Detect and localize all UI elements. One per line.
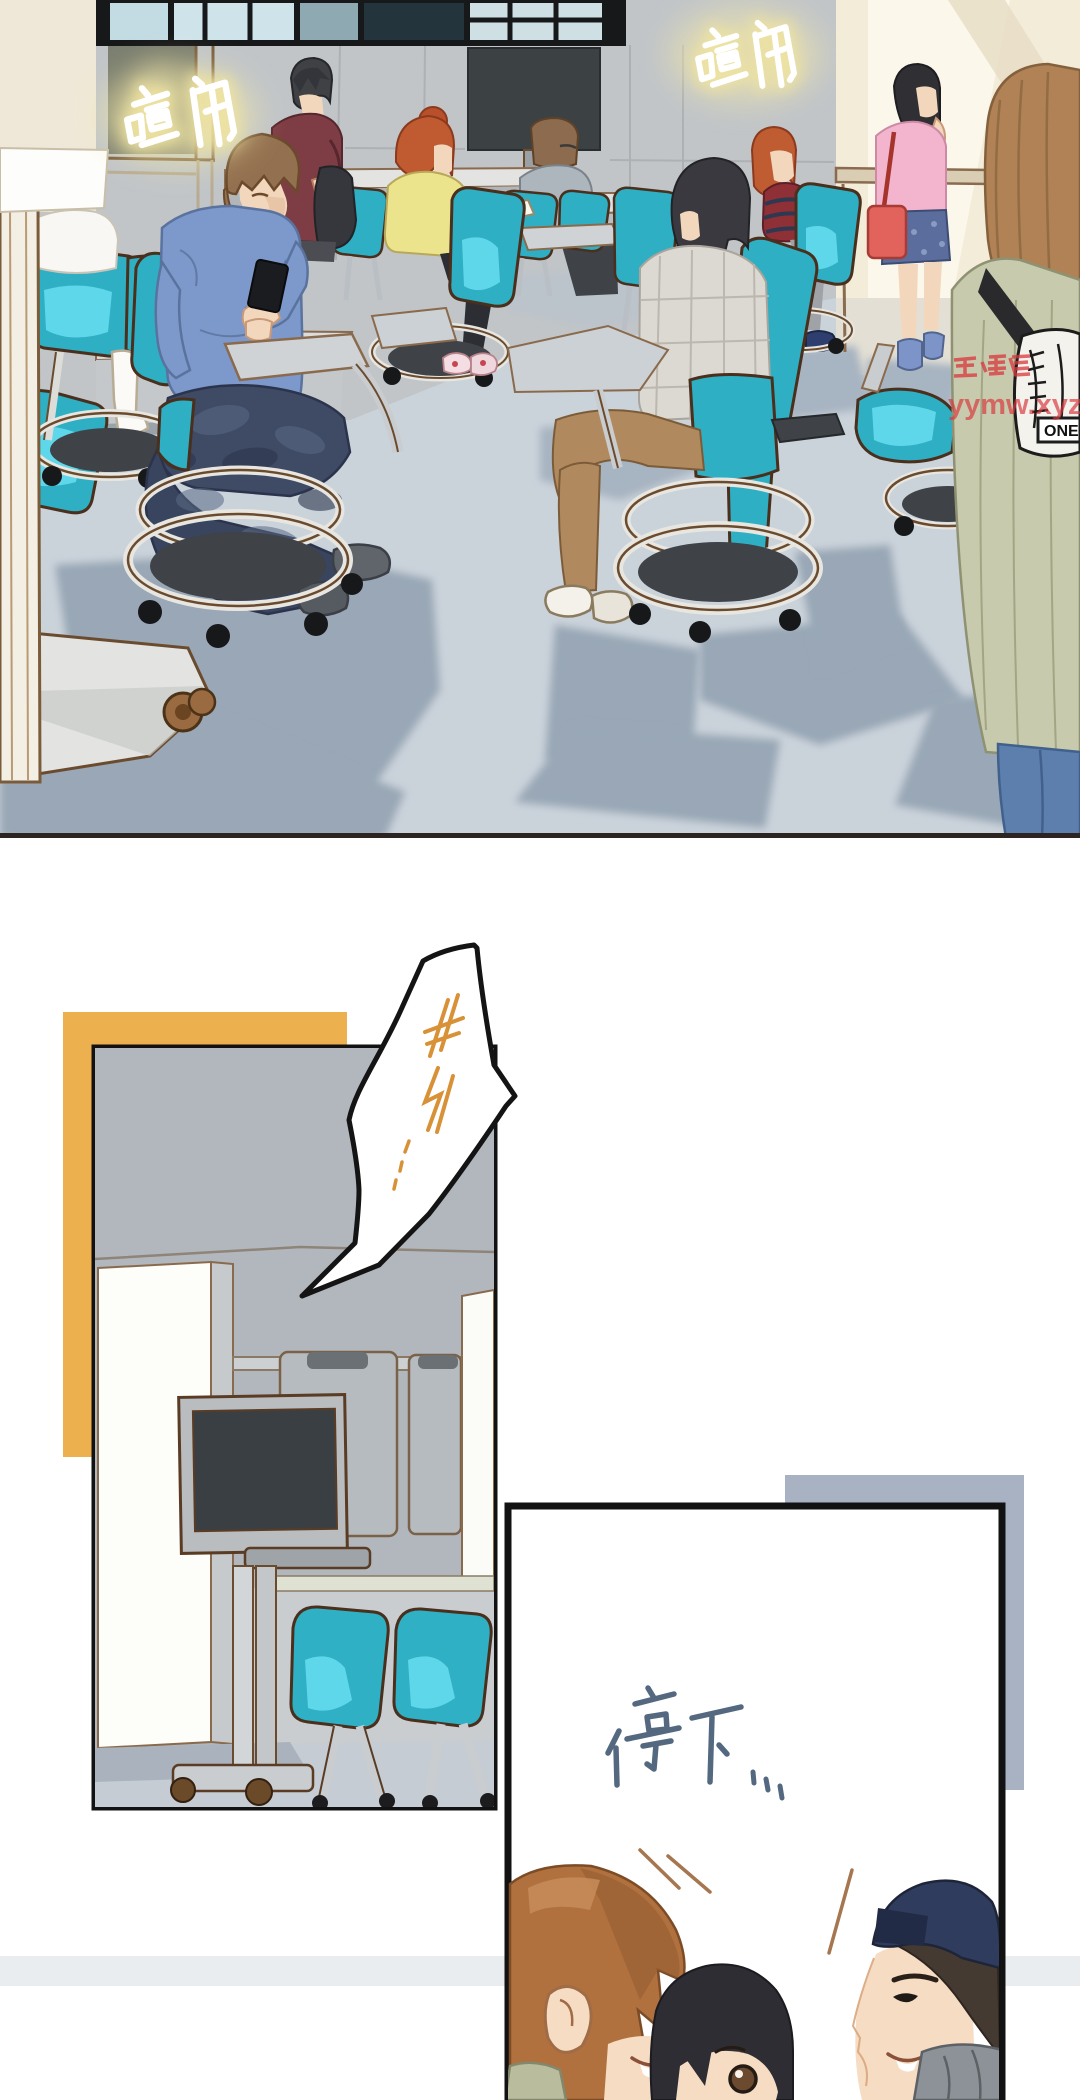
svg-text:ONE: ONE <box>1044 423 1079 440</box>
svg-text:yymw.xyz: yymw.xyz <box>948 389 1080 421</box>
